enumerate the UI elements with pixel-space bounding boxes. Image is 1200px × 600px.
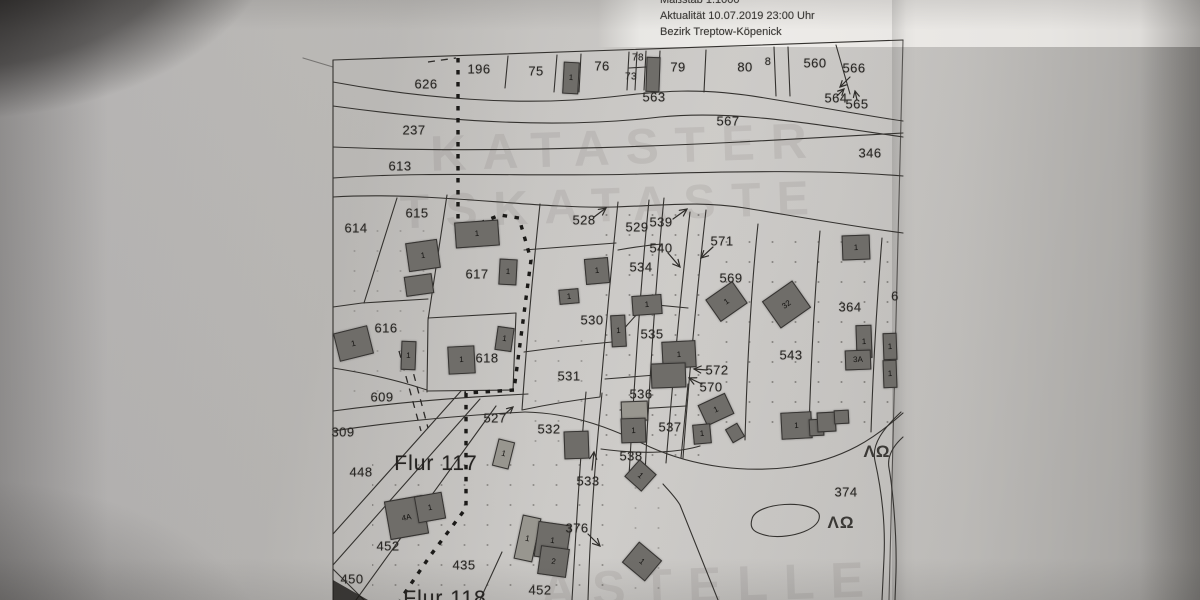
cadastral-map-photo: KATASTERTSKATASTEASTELLE [0,0,1200,600]
building: 1 [584,257,610,285]
building-number: 1 [888,342,893,350]
parcel-label-527: 527 [484,411,507,426]
flur-label: Flur 117 [394,452,477,476]
parcel-label-571: 571 [711,234,734,249]
parcel-label-566: 566 [843,61,866,76]
parcel-label-452: 452 [529,583,552,598]
building: 1 [692,423,712,444]
header-masstab: Maßstab 1:1000 [660,0,815,8]
building: 1 [494,326,514,352]
parcel-label-537: 537 [659,420,682,435]
building: 1 [558,288,579,305]
building: 1 [883,333,898,360]
parcel-label-196: 196 [468,62,491,77]
building: 1 [780,411,812,440]
flur-label: Flur 118 [403,587,486,600]
parcel-label-346: 346 [859,146,882,161]
parcel-label-376: 376 [566,521,589,536]
building-number: 1 [616,327,621,335]
building: 1 [414,492,446,523]
building: 1 [610,315,627,348]
parcel-label-540: 540 [650,241,673,256]
building: 1 [498,259,517,286]
parcel-label-616: 616 [375,321,398,336]
building-number: 1 [502,335,508,344]
parcel-label-364: 364 [839,300,862,315]
parcel-label-572: 572 [706,363,729,378]
building: 1 [562,62,580,95]
parcel-label-529: 529 [626,220,649,235]
building-number: 1 [566,292,571,300]
building-number: 1 [636,471,645,480]
parcel-label-237: 237 [403,123,426,138]
building-number: 2 [551,557,557,566]
parcel-label-626: 626 [415,77,438,92]
building-number: 1 [420,251,426,260]
parcel-label-448: 448 [350,465,373,480]
building-number: 32 [781,299,793,311]
building [651,362,687,388]
building-number: 1 [459,356,464,364]
parcel-label-532: 532 [538,422,561,437]
building-number: 3A [853,356,863,364]
parcel-label-563: 563 [643,90,666,105]
building: 1 [400,341,416,371]
map-header: Maßstab 1:1000 Aktualität 10.07.2019 23:… [660,0,815,40]
parcel-label-618: 618 [476,351,499,366]
parcel-label-79: 79 [670,60,685,75]
map-symbol: ΛΩ [828,513,855,533]
building-number: 1 [406,351,411,359]
parcel-label-539: 539 [650,215,673,230]
building-number: 1 [722,297,730,306]
parcel-label-6: 6 [891,289,899,304]
parcel-label-565: 565 [846,97,869,112]
parcel-label-75: 75 [528,64,543,79]
parcel-label-309: 309 [332,425,355,440]
building-number: 1 [569,74,574,82]
parcel-label-613: 613 [389,159,412,174]
parcel-label-614: 614 [345,221,368,236]
building-number: 1 [699,430,704,438]
parcel-label-564: 564 [825,91,848,106]
parcel-label-536: 536 [630,387,653,402]
building-number: 1 [712,405,719,414]
building [564,431,590,460]
building: 1 [631,294,662,316]
parcel-label-530: 530 [581,313,604,328]
building-number: 1 [474,230,479,238]
parcel-label-374: 374 [835,485,858,500]
building-number: 1 [594,267,599,275]
map-symbol: ΛΩ [864,442,891,462]
building: 3A [845,350,872,371]
parcel-label-80: 80 [737,60,752,75]
building-number: 1 [862,337,867,345]
parcel-label-450: 450 [341,572,364,587]
parcel-label-567: 567 [717,114,740,129]
parcel-label-435: 435 [453,558,476,573]
parcel-label-76: 76 [594,59,609,74]
building-number: 1 [631,426,636,434]
parcel-label-78: 78 [632,53,644,64]
header-bezirk: Bezirk Treptow-Köpenick [660,24,815,40]
building: 2 [537,545,570,578]
building: 1 [454,219,500,248]
parcel-label-533: 533 [577,474,600,489]
parcel-boundary-lines [0,0,1200,600]
parcel-label-452: 452 [377,539,400,554]
building-number: 1 [500,450,506,459]
parcel-label-569: 569 [720,271,743,286]
building [645,57,660,92]
building-number: 1 [794,421,799,429]
building-number: 1 [638,557,647,566]
building: 1 [447,345,475,374]
building-number: 1 [506,268,511,276]
parcel-label-528: 528 [573,213,596,228]
parcel-label-543: 543 [780,348,803,363]
building-number: 1 [350,339,356,348]
building-number: 1 [854,243,859,251]
parcel-label-560: 560 [804,56,827,71]
parcel-label-73: 73 [625,72,637,83]
parcel-label-535: 535 [641,327,664,342]
parcel-label-8: 8 [765,56,772,68]
building-number: 1 [644,301,649,309]
building-number: 1 [427,503,433,512]
parcel-label-609: 609 [371,390,394,405]
building: 1 [405,239,441,272]
parcel-label-534: 534 [630,260,653,275]
parcel-label-531: 531 [558,369,581,384]
building: 1 [842,235,871,261]
parcel-label-615: 615 [406,206,429,221]
parcel-label-617: 617 [466,267,489,282]
building-number: 1 [524,534,530,543]
parcel-label-570: 570 [700,380,723,395]
building-number: 1 [677,350,682,358]
building: 1 [883,360,898,388]
parcel-label-538: 538 [620,449,643,464]
label-arrows [505,77,859,548]
building-number: 1 [888,370,893,378]
building: 1 [621,418,647,444]
building [834,410,850,425]
building [404,273,435,297]
building-number: 1 [550,537,556,546]
header-aktualitaet: Aktualität 10.07.2019 23:00 Uhr [660,8,815,24]
building-number: 4A [401,513,412,523]
